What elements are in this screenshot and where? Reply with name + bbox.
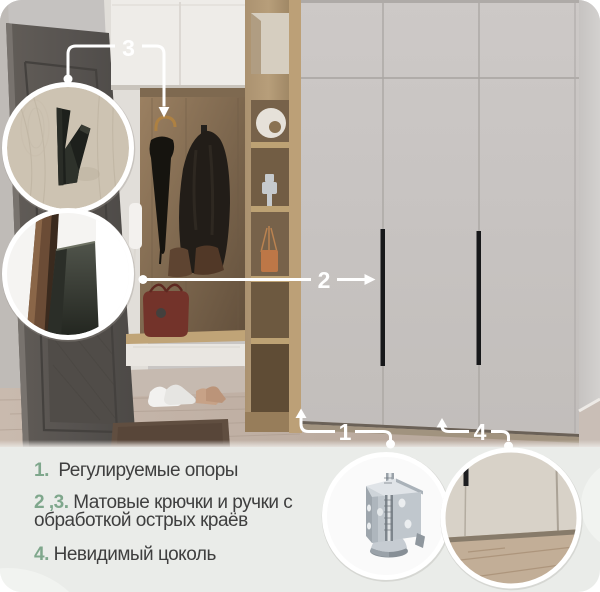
svg-text:1: 1 [339,419,352,445]
svg-text:4: 4 [474,419,487,445]
svg-text:2: 2 [318,267,331,293]
svg-text:3: 3 [122,35,135,61]
